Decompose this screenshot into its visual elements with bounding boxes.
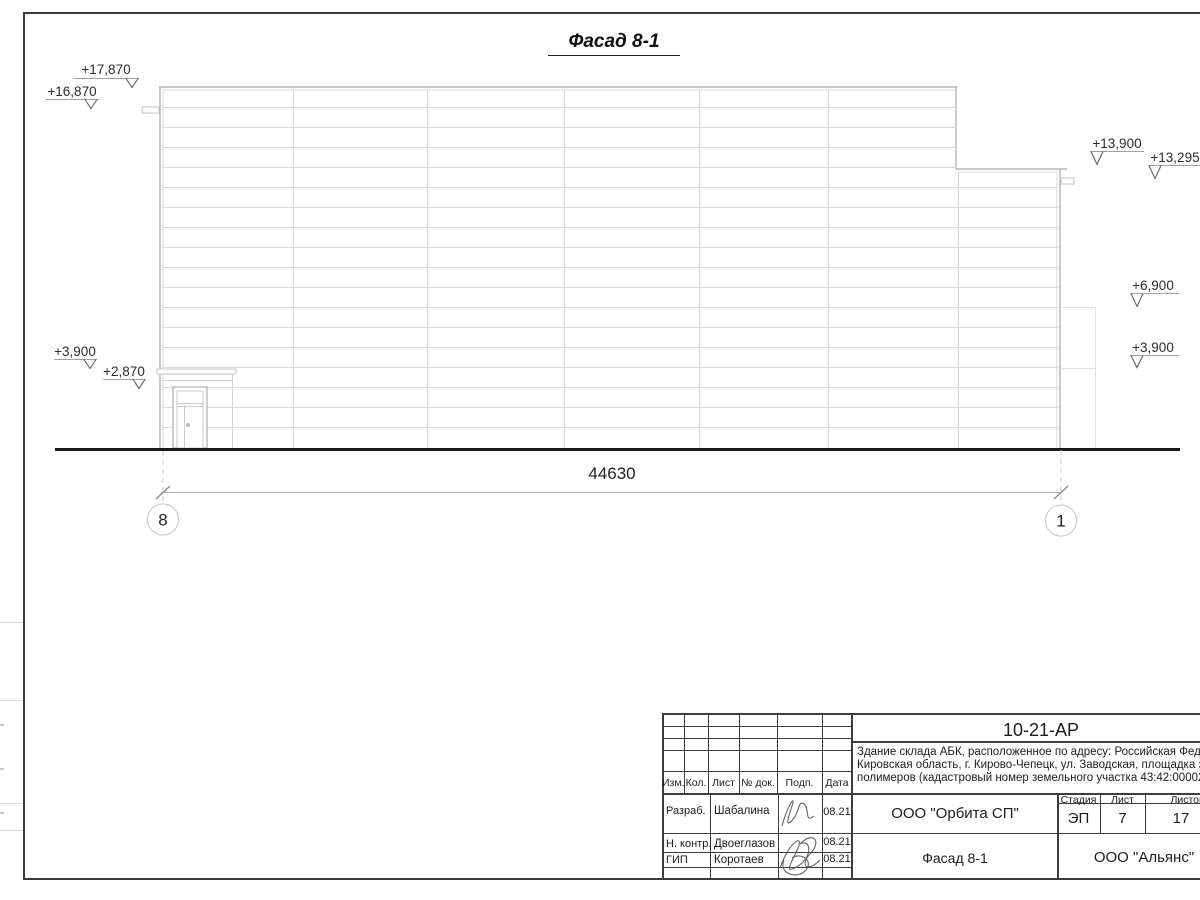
sheets-value: 17 [1145, 810, 1200, 827]
signatures [770, 790, 830, 885]
sheet-title: Фасад 8-1 [853, 850, 1057, 866]
col-kol: Кол. [684, 777, 708, 789]
role-name: Двоеглазов [714, 838, 775, 850]
role-label: Н. контр. [666, 838, 711, 850]
role-label: ГИП [666, 854, 688, 866]
sheet-header: Лист [1100, 794, 1145, 806]
doc-number: 10-21-АР [852, 720, 1200, 741]
project-description-line: полимеров (кадастровый номер земельного … [857, 772, 1200, 784]
sheets-header: Листов [1145, 794, 1200, 806]
signature-scribble [783, 856, 808, 875]
col-list: Лист [708, 777, 739, 789]
col-izm: Изм. [662, 777, 684, 789]
design-org: ООО "Орбита СП" [853, 805, 1057, 822]
col-ndok: № док. [739, 777, 777, 789]
stage-value: ЭП [1057, 810, 1100, 827]
stage-header: Стадия [1057, 794, 1100, 806]
drawing-sheet: Фасад 8-1 [0, 0, 1200, 900]
project-description-line: Кировская область, г. Кирово-Чепецк, ул.… [857, 759, 1200, 771]
signature-scribble [780, 838, 820, 870]
role-label: Разраб. [666, 805, 706, 817]
sheet-value: 7 [1100, 810, 1145, 827]
title-block: 10-21-АР Здание склада АБК, расположенно… [0, 0, 1200, 900]
project-description-line: Здание склада АБК, расположенное по адре… [857, 746, 1200, 758]
role-name: Коротаев [714, 854, 764, 866]
col-data: Дата [822, 777, 852, 789]
role-name: Шабалина [714, 805, 770, 817]
signature-scribble [782, 801, 814, 826]
client-org: ООО "Альянс" [1058, 849, 1200, 866]
col-podp: Подп. [777, 777, 822, 789]
